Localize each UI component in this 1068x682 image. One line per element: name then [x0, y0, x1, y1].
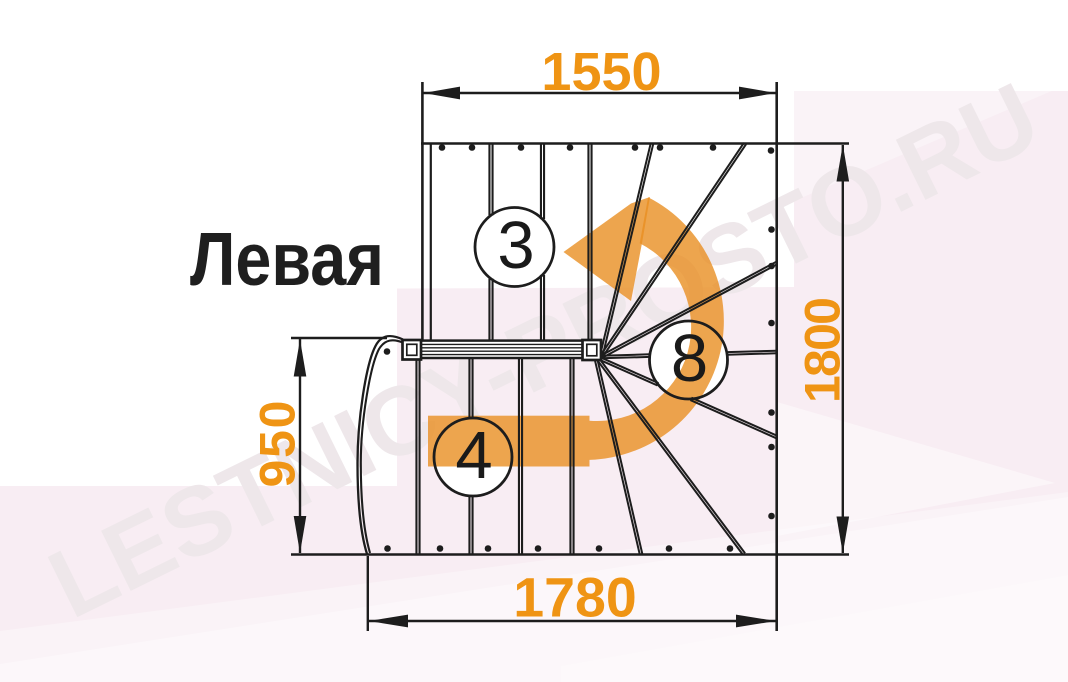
svg-text:4: 4 — [455, 418, 492, 493]
svg-text:950: 950 — [250, 401, 306, 488]
svg-text:1800: 1800 — [795, 297, 851, 403]
svg-text:3: 3 — [497, 208, 534, 283]
svg-text:1780: 1780 — [513, 567, 636, 629]
svg-text:8: 8 — [671, 321, 708, 396]
svg-text:Левая: Левая — [190, 217, 384, 301]
svg-text:1550: 1550 — [541, 42, 661, 102]
